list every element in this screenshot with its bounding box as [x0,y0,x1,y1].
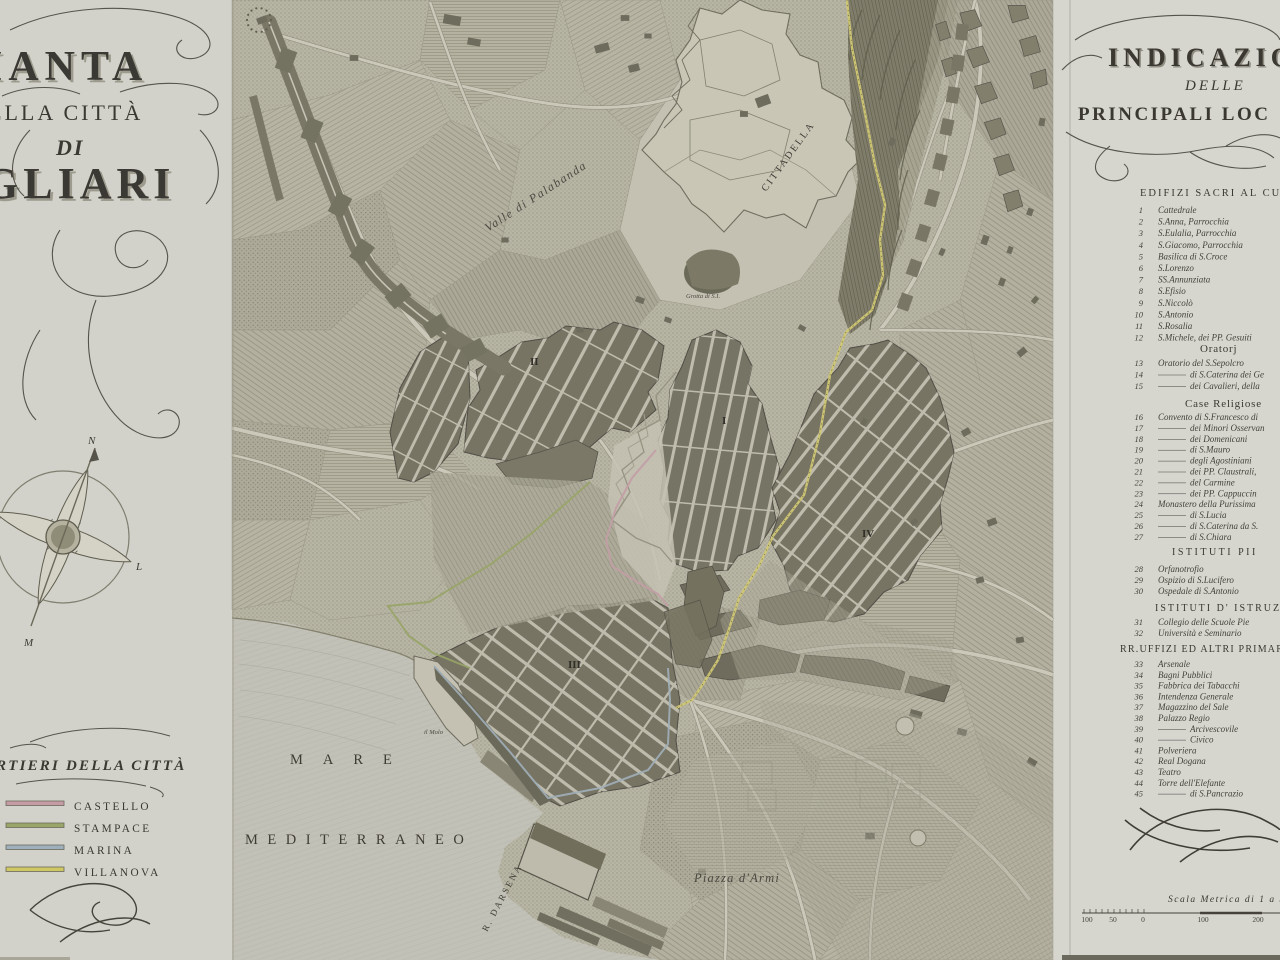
svg-text:di S.Caterina dei Ge: di S.Caterina dei Ge [1190,370,1264,380]
svg-text:Palazzo Regio: Palazzo Regio [1157,713,1210,723]
svg-text:di S.Mauro: di S.Mauro [1190,445,1231,455]
svg-text:11: 11 [1135,321,1143,331]
svg-text:di S.Chiara: di S.Chiara [1190,532,1232,542]
svg-text:Case Religiose: Case Religiose [1185,398,1262,410]
svg-text:22: 22 [1135,477,1144,487]
svg-text:0: 0 [1141,915,1145,924]
svg-text:MARINA: MARINA [74,845,134,857]
svg-text:S.Niccolò: S.Niccolò [1158,298,1193,308]
svg-text:21: 21 [1135,467,1144,477]
svg-text:Intendenza Generale: Intendenza Generale [1157,691,1233,701]
svg-text:Basilica di S.Croce: Basilica di S.Croce [1158,251,1227,261]
svg-text:del Carmine: del Carmine [1190,477,1235,487]
svg-text:Cattedrale: Cattedrale [1158,205,1197,215]
svg-text:Oratorio del S.Sepolcro: Oratorio del S.Sepolcro [1158,358,1244,368]
svg-text:S.Giacomo, Parrocchia: S.Giacomo, Parrocchia [1158,240,1243,250]
svg-text:dei PP. Claustrali,: dei PP. Claustrali, [1190,467,1256,477]
svg-text:IANTA: IANTA [0,44,148,90]
svg-text:PRINCIPALI LOC: PRINCIPALI LOC [1078,104,1270,125]
svg-text:25: 25 [1135,510,1144,520]
svg-text:S.Michele, dei PP. Gesuiti: S.Michele, dei PP. Gesuiti [1158,333,1252,343]
svg-text:dei Cavalieri, della: dei Cavalieri, della [1190,381,1260,391]
svg-text:Scala Metrica di 1 a Su: Scala Metrica di 1 a Su [1168,895,1280,905]
svg-text:34: 34 [1134,670,1144,680]
svg-text:CASTELLO: CASTELLO [74,801,151,813]
svg-text:24: 24 [1135,499,1144,509]
svg-text:S.Eulalia, Parrocchia: S.Eulalia, Parrocchia [1158,228,1237,238]
svg-text:Orfanotrofio: Orfanotrofio [1158,564,1204,574]
svg-text:S.Rosalia: S.Rosalia [1158,321,1193,331]
svg-text:29: 29 [1135,575,1144,585]
svg-text:44: 44 [1135,778,1144,788]
svg-text:16: 16 [1135,412,1144,422]
svg-text:di S.Caterina da S.: di S.Caterina da S. [1190,521,1258,531]
svg-text:5: 5 [1139,251,1143,261]
svg-text:Oratorj: Oratorj [1200,343,1237,355]
svg-text:degli Agostiniani: degli Agostiniani [1190,456,1252,466]
svg-text:Arcivescovile: Arcivescovile [1189,724,1238,734]
svg-text:12: 12 [1135,333,1144,343]
svg-text:10: 10 [1135,309,1144,319]
svg-text:Civico: Civico [1190,735,1214,745]
svg-text:RTIERI DELLA CITTÀ: RTIERI DELLA CITTÀ [0,757,186,774]
svg-text:ELLA CITTÀ: ELLA CITTÀ [0,100,143,125]
svg-text:Teatro: Teatro [1158,767,1181,777]
svg-text:31: 31 [1134,617,1144,627]
svg-text:DELLE: DELLE [1184,78,1246,94]
svg-text:dei PP. Cappuccin: dei PP. Cappuccin [1190,488,1257,498]
svg-text:100: 100 [1081,915,1093,924]
svg-text:ISTITUTI D' ISTRUZI: ISTITUTI D' ISTRUZI [1155,603,1280,614]
svg-text:S.Antonio: S.Antonio [1158,309,1194,319]
svg-text:DI: DI [55,135,84,160]
svg-text:41: 41 [1135,745,1144,755]
svg-text:Ospizio di S.Lucifero: Ospizio di S.Lucifero [1158,575,1234,585]
svg-text:S.Lorenzo: S.Lorenzo [1158,263,1194,273]
svg-text:50: 50 [1109,915,1117,924]
svg-text:17: 17 [1135,423,1144,433]
svg-text:S.Anna, Parrocchia: S.Anna, Parrocchia [1158,217,1229,227]
svg-text:SS.Annunziata: SS.Annunziata [1158,275,1211,285]
svg-text:28: 28 [1135,564,1144,574]
svg-text:20: 20 [1135,456,1144,466]
svg-text:STAMPACE: STAMPACE [74,823,152,835]
svg-text:di S.Pancrazio: di S.Pancrazio [1190,789,1243,799]
svg-text:100: 100 [1197,915,1209,924]
svg-text:43: 43 [1135,767,1144,777]
svg-text:Università e Seminario: Università e Seminario [1158,628,1242,638]
svg-text:26: 26 [1135,521,1144,531]
svg-text:27: 27 [1135,532,1144,542]
svg-text:RR.UFFIZI ED ALTRI PRIMAR: RR.UFFIZI ED ALTRI PRIMAR [1120,644,1280,655]
svg-text:Real Dogana: Real Dogana [1157,756,1206,766]
svg-text:13: 13 [1135,358,1144,368]
svg-text:33: 33 [1134,659,1144,669]
svg-text:18: 18 [1135,434,1144,444]
svg-text:INDICAZIO: INDICAZIO [1108,43,1280,72]
svg-text:Magazzino del Sale: Magazzino del Sale [1157,702,1229,712]
svg-text:39: 39 [1134,724,1144,734]
svg-text:14: 14 [1135,370,1144,380]
svg-text:S.Efisio: S.Efisio [1158,286,1186,296]
svg-text:M: M [23,637,34,649]
svg-text:32: 32 [1134,628,1144,638]
svg-text:Monastero della Purissima: Monastero della Purissima [1157,499,1256,509]
svg-text:di S.Lucia: di S.Lucia [1190,510,1227,520]
svg-text:Arsenale: Arsenale [1157,659,1190,669]
svg-text:36: 36 [1134,691,1144,701]
svg-text:200: 200 [1252,915,1264,924]
svg-text:42: 42 [1135,756,1144,766]
svg-text:45: 45 [1135,789,1144,799]
svg-text:dei Minori Osservan: dei Minori Osservan [1190,423,1265,433]
svg-text:Fabbrica dei Tabacchi: Fabbrica dei Tabacchi [1157,681,1240,691]
svg-text:38: 38 [1134,713,1144,723]
svg-text:GLIARI: GLIARI [0,159,175,208]
svg-text:N: N [87,435,96,447]
svg-text:EDIFIZI SACRI AL CU: EDIFIZI SACRI AL CU [1140,188,1280,199]
svg-text:Collegio delle Scuole Pie: Collegio delle Scuole Pie [1158,617,1249,627]
svg-text:L: L [135,561,142,573]
svg-text:Polveriera: Polveriera [1157,745,1197,755]
svg-text:Convento di S.Francesco di: Convento di S.Francesco di [1158,412,1258,422]
svg-text:3: 3 [1138,228,1143,238]
svg-text:1: 1 [1139,205,1143,215]
svg-text:15: 15 [1135,381,1144,391]
svg-text:40: 40 [1135,735,1144,745]
svg-text:dei Domenicani: dei Domenicani [1190,434,1248,444]
svg-text:35: 35 [1134,681,1144,691]
svg-text:37: 37 [1134,702,1144,712]
svg-text:ISTITUTI PII: ISTITUTI PII [1172,547,1258,558]
svg-text:Ospedale di S.Antonio: Ospedale di S.Antonio [1158,586,1239,596]
svg-text:Torre dell'Elefante: Torre dell'Elefante [1158,778,1225,788]
svg-text:VILLANOVA: VILLANOVA [74,867,161,879]
svg-text:23: 23 [1135,488,1144,498]
svg-text:Bagni Pubblici: Bagni Pubblici [1158,670,1213,680]
svg-text:19: 19 [1135,445,1144,455]
svg-text:30: 30 [1134,586,1144,596]
